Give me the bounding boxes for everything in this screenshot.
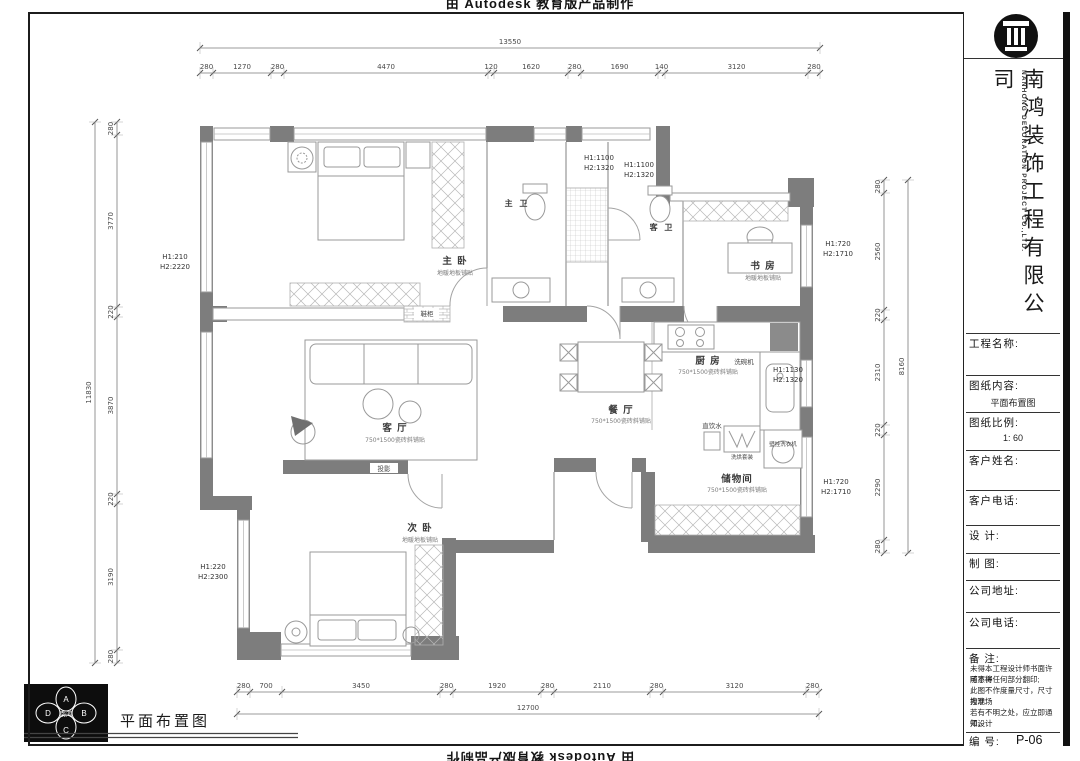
company-name-en: NANHONG DECORATION PROJECT CO.,LTD. xyxy=(1020,70,1027,334)
field-designer: 设 计: xyxy=(966,525,1060,553)
field-project: 工程名称: xyxy=(966,333,1060,375)
field-client-phone: 客户电话: xyxy=(966,490,1060,525)
field-drafter: 制 图: xyxy=(966,553,1060,580)
field-notes: 备 注: 未得本工程设计师书面许可不得 随意将任何部分翻印; 此图不作度量尺寸，… xyxy=(966,648,1060,732)
sheet-border xyxy=(28,12,1070,746)
field-client: 客户姓名: xyxy=(966,450,1060,490)
company-logo-icon xyxy=(993,13,1039,59)
company-name-cn: 南鸿装饰工程有限公司 xyxy=(988,68,1048,336)
field-content: 图纸内容: 平面布置图 xyxy=(966,375,1060,412)
title-block-divider xyxy=(964,58,1063,59)
content-value: 平面布置图 xyxy=(966,396,1060,409)
sheet-right-edge xyxy=(1063,12,1070,746)
field-number: 编 号: P-06 xyxy=(966,732,1060,746)
field-company-phone: 公司电话: xyxy=(966,612,1060,648)
field-address: 公司地址: xyxy=(966,580,1060,612)
scale-value: 1: 60 xyxy=(966,433,1060,443)
drawing-number: P-06 xyxy=(1016,733,1042,747)
field-scale: 图纸比例: 1: 60 xyxy=(966,412,1060,450)
title-block: 南鸿装饰工程有限公司 NANHONG DECORATION PROJECT CO… xyxy=(963,12,1063,746)
